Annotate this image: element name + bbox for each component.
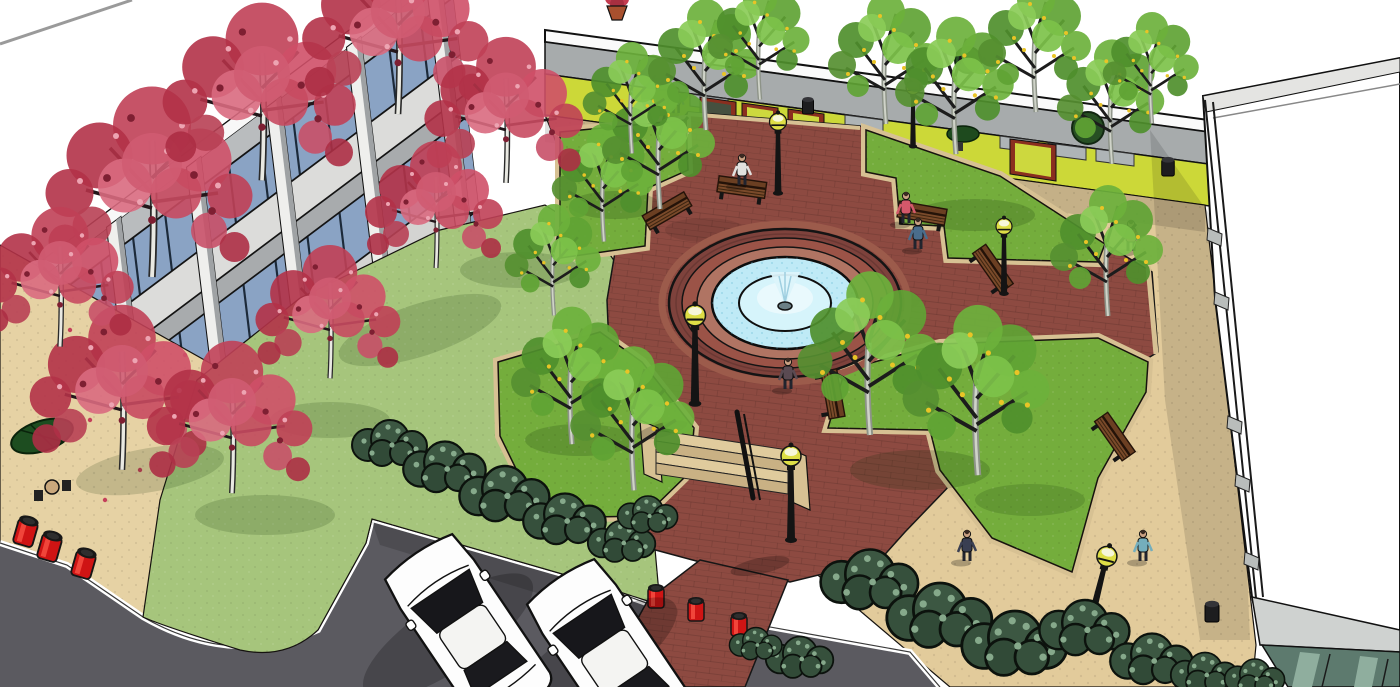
cafe-table <box>45 480 59 494</box>
red-bollard <box>688 597 704 621</box>
fountain-nozzle <box>778 302 792 310</box>
plaza-rendering <box>0 0 1400 687</box>
trash-can <box>1205 601 1219 622</box>
trash-can <box>802 97 813 114</box>
trash-can <box>1162 157 1175 176</box>
red-bollard <box>731 612 747 636</box>
cafe-chair <box>34 490 43 501</box>
cafe-chair <box>62 480 71 491</box>
rendering-canvas <box>0 0 1400 687</box>
